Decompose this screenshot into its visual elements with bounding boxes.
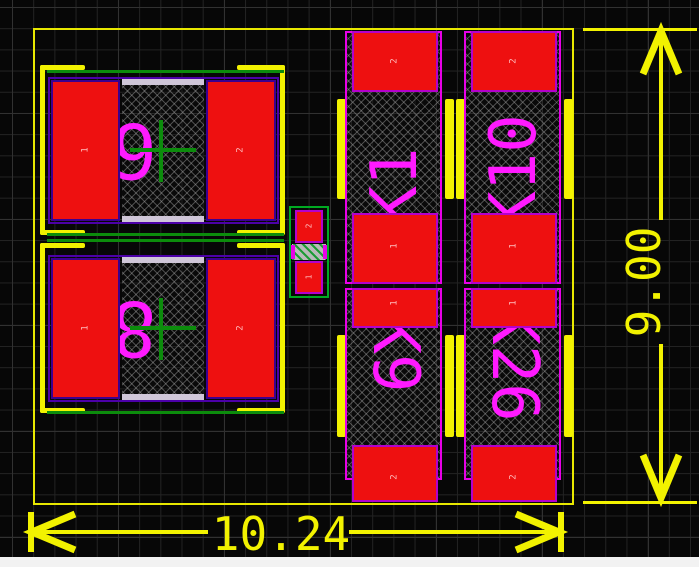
pad-number: 2 (305, 224, 314, 229)
silkscreen-bar (564, 99, 573, 199)
arrow-left-icon (24, 505, 84, 565)
pad-number: 1 (391, 243, 400, 248)
arrow-down-icon (631, 444, 691, 504)
pad-number: 2 (391, 58, 400, 63)
body-end-strip (122, 394, 204, 400)
pad-number: 1 (82, 325, 91, 330)
pad-outline (345, 31, 347, 284)
origin-cross (130, 326, 196, 330)
body-band (292, 244, 326, 260)
pad-outline (559, 31, 561, 284)
dimension-value: 9.00 (621, 227, 667, 338)
pad-outline (559, 288, 561, 480)
pad-number: 1 (391, 300, 400, 305)
pad-number: 2 (510, 474, 519, 479)
pad-1[interactable] (352, 288, 438, 328)
pad-number: 2 (510, 58, 519, 63)
courtyard-line (47, 239, 284, 242)
pad-number: 1 (510, 300, 519, 305)
silkscreen-bar (445, 99, 454, 199)
silkscreen-bracket (40, 65, 45, 235)
pad-outline (345, 288, 347, 480)
silkscreen-bar (445, 335, 454, 437)
silkscreen-bracket (40, 243, 45, 413)
pad-outline (464, 31, 466, 284)
dimension-value: 10.24 (212, 511, 350, 557)
pad-1[interactable] (471, 288, 557, 328)
origin-cross (159, 120, 163, 182)
origin-cross (159, 298, 163, 360)
pad-outline (440, 288, 442, 480)
pcb-viewport[interactable]: 6 1 2 8 1 2 2 1 (0, 0, 699, 567)
body-end-strip (122, 216, 204, 222)
body-band-mark (323, 245, 327, 259)
body-band-mark (291, 245, 295, 259)
pad-outline (464, 288, 466, 480)
courtyard-line (47, 233, 284, 236)
pad-number: 2 (237, 325, 246, 330)
courtyard-line (47, 411, 284, 414)
pad-outline (440, 31, 442, 284)
pad-number: 2 (237, 147, 246, 152)
arrow-right-icon (512, 505, 572, 565)
silkscreen-bracket (40, 243, 85, 248)
pad-number: 1 (510, 243, 519, 248)
silkscreen-bracket (280, 65, 285, 235)
body-end-strip (122, 257, 204, 263)
silkscreen-bracket (280, 243, 285, 413)
silkscreen-bracket (237, 243, 285, 248)
pad-number: 2 (391, 474, 400, 479)
silkscreen-bar (564, 335, 573, 437)
body-end-strip (122, 79, 204, 85)
pad-number: 1 (305, 275, 314, 280)
pad-number: 1 (82, 147, 91, 152)
window-edge-strip (0, 557, 699, 567)
origin-cross (130, 148, 196, 152)
courtyard-line (47, 70, 284, 73)
arrow-up-icon (631, 26, 691, 86)
